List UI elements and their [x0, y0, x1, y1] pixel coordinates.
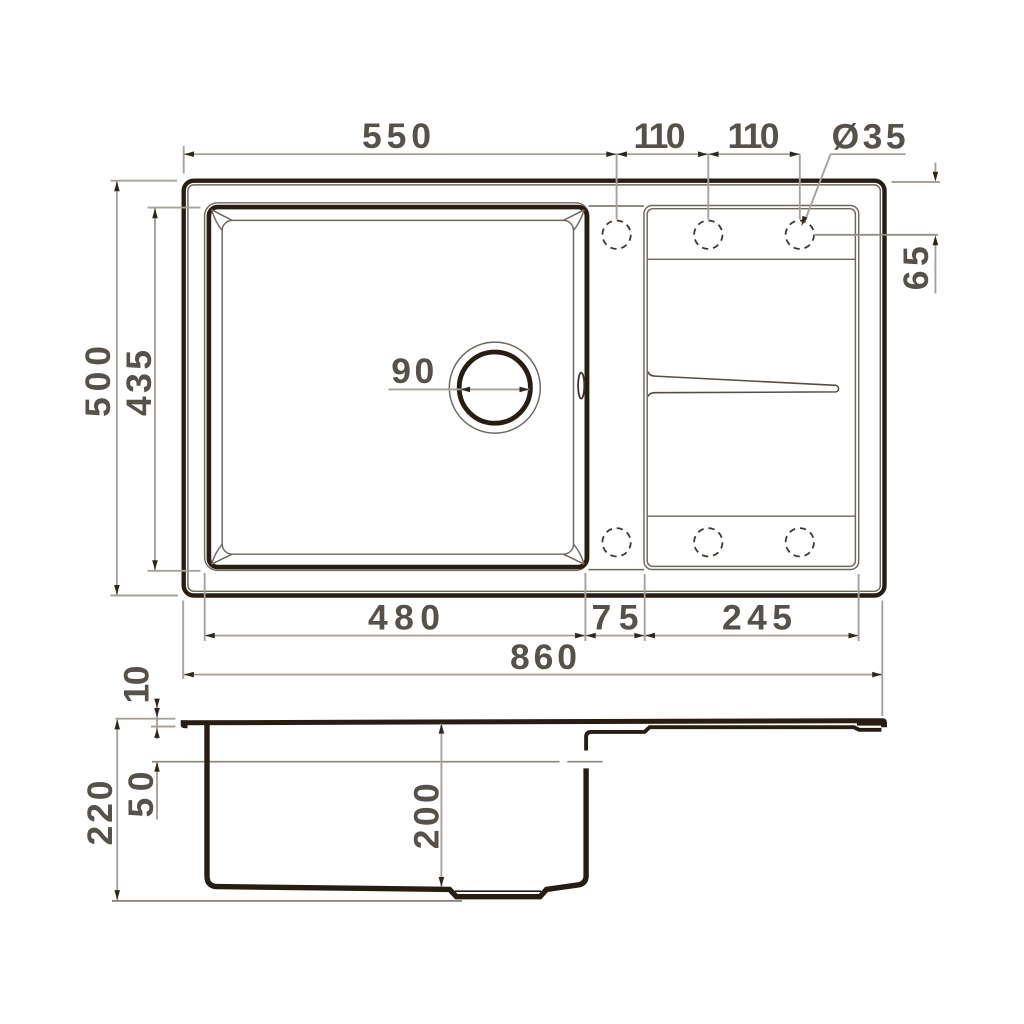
svg-text:10: 10	[117, 666, 157, 704]
svg-text:245: 245	[722, 597, 792, 637]
svg-text:480: 480	[368, 597, 440, 637]
svg-text:220: 220	[80, 781, 120, 846]
svg-text:500: 500	[78, 346, 118, 417]
svg-text:200: 200	[406, 783, 446, 849]
svg-text:550: 550	[362, 116, 431, 156]
svg-text:110: 110	[728, 116, 780, 156]
svg-text:110: 110	[634, 116, 686, 156]
svg-text:Ø35: Ø35	[832, 117, 906, 157]
svg-text:435: 435	[119, 350, 159, 416]
svg-text:860: 860	[510, 637, 577, 677]
